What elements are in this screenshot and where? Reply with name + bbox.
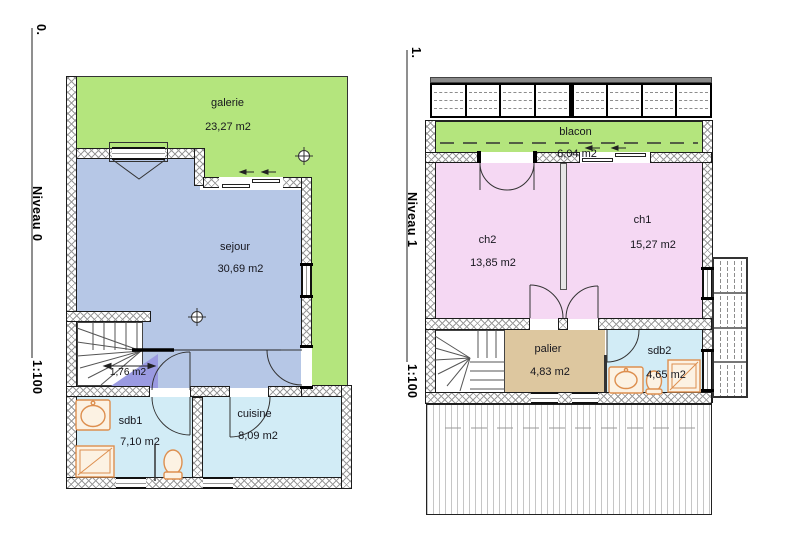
wall-cuisine-right bbox=[341, 385, 352, 489]
room-area-vestibule: 1,76 m2 bbox=[96, 367, 160, 378]
wall-balcony-a bbox=[425, 152, 480, 163]
right-axis-number: 1. bbox=[409, 47, 423, 58]
wall-bottom-n1 bbox=[425, 392, 712, 404]
wall-mid-b bbox=[598, 318, 712, 330]
wall-balcony-c bbox=[650, 152, 712, 163]
exterior-stair-flight bbox=[714, 259, 746, 294]
partition-ch1-ch2 bbox=[560, 163, 567, 290]
room-label-sdb1: sdb1 bbox=[103, 415, 158, 427]
wall-sejour-bottom-b bbox=[190, 386, 230, 397]
right-scale-label: 1:100 bbox=[405, 364, 419, 398]
french-door-opening-balcon bbox=[480, 152, 534, 163]
staircase-niveau1 bbox=[432, 330, 505, 393]
exterior-stair-flight bbox=[714, 329, 746, 364]
wall-galerie-sejour-a bbox=[76, 148, 114, 159]
pergola-panel bbox=[499, 85, 534, 116]
wall-sdb1-cuisine-pier bbox=[192, 397, 203, 478]
wall-sejour-east-2 bbox=[301, 294, 312, 350]
window-palier-bottom-1 bbox=[531, 392, 558, 404]
room-area-palier: 4,83 m2 bbox=[516, 366, 584, 378]
pergola-panel bbox=[534, 85, 569, 116]
room-galerie-right-band bbox=[311, 185, 347, 387]
roof-below-niveau1 bbox=[426, 404, 712, 515]
room-label-ch2: ch2 bbox=[460, 234, 515, 246]
right-level-label: Niveau 1 bbox=[405, 192, 419, 247]
pergola-panel bbox=[432, 85, 465, 116]
room-galerie bbox=[67, 77, 347, 153]
wall-mid-a bbox=[425, 318, 530, 330]
exterior-stair bbox=[712, 257, 748, 398]
room-sdb2 bbox=[607, 330, 702, 393]
pergola-panel bbox=[569, 85, 607, 116]
wall-palier-sdb2 bbox=[604, 355, 607, 393]
wall-sejour-bottom-a bbox=[66, 386, 150, 397]
window-palier-bottom-2 bbox=[572, 392, 598, 404]
room-area-galerie: 23,27 m2 bbox=[182, 121, 274, 133]
room-label-sdb2: sdb2 bbox=[632, 345, 687, 357]
left-scale-label: 1:100 bbox=[30, 360, 44, 394]
pergola-panel bbox=[465, 85, 500, 116]
door-opening-sejour-galerie bbox=[301, 348, 312, 387]
room-label-galerie: galerie bbox=[185, 97, 270, 109]
room-area-sejour: 30,69 m2 bbox=[198, 263, 283, 275]
window-cuisine-bottom bbox=[203, 477, 233, 489]
room-area-ch1: 15,27 m2 bbox=[617, 239, 689, 251]
room-label-palier: palier bbox=[518, 343, 578, 355]
room-area-balcon: 6,04 m2 bbox=[542, 148, 612, 160]
room-area-cuisine: 8,09 m2 bbox=[222, 430, 294, 442]
room-area-ch2: 13,85 m2 bbox=[458, 257, 528, 269]
wall-sejour-east-1 bbox=[301, 177, 312, 268]
sliding-door-panel-2 bbox=[252, 179, 280, 183]
exterior-stair-flight bbox=[714, 363, 746, 396]
pergola-panel bbox=[606, 85, 641, 116]
room-palier bbox=[505, 330, 605, 393]
pergola-panel bbox=[675, 85, 710, 116]
pergola-roof bbox=[430, 83, 712, 118]
left-level-label: Niveau 0 bbox=[30, 186, 44, 241]
window-sejour-east bbox=[301, 266, 312, 296]
room-label-cuisine: cuisine bbox=[222, 408, 287, 420]
pergola-panel bbox=[641, 85, 676, 116]
room-label-balcon: blacon bbox=[538, 126, 613, 138]
galerie-deck-edge-right bbox=[347, 76, 348, 386]
room-area-sdb2: 4,65 m2 bbox=[632, 369, 700, 381]
sliding-door-panel-4 bbox=[615, 153, 646, 157]
floor-plan-sheet: 0. Niveau 0 1:100 1. Niveau 1 1:100 bbox=[0, 0, 801, 558]
wall-left-outer bbox=[66, 76, 77, 489]
wall-galerie-sejour-c bbox=[203, 177, 220, 188]
room-label-sejour: sejour bbox=[200, 241, 270, 253]
left-axis-number: 0. bbox=[34, 24, 48, 35]
window-sdb1-bottom bbox=[116, 477, 146, 489]
room-area-sdb1: 7,10 m2 bbox=[105, 436, 175, 448]
wall-mid-pier bbox=[558, 318, 568, 330]
room-label-ch1: ch1 bbox=[615, 214, 670, 226]
exterior-stair-flight bbox=[714, 294, 746, 329]
sliding-door-panel-1 bbox=[222, 184, 250, 188]
window-galerie-sejour bbox=[112, 147, 165, 160]
wall-stair-top bbox=[66, 311, 151, 322]
